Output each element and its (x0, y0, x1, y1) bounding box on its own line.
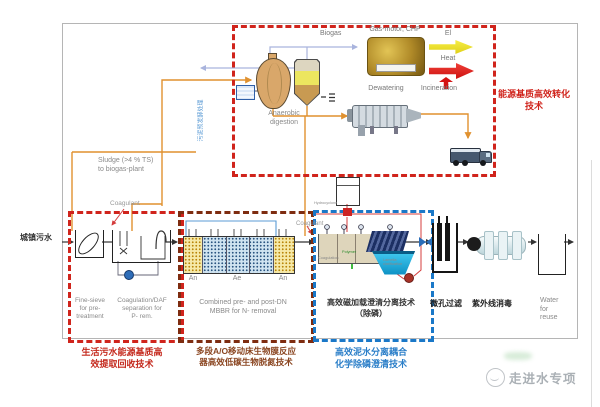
coagulant-label-clarifier: Coagulant (296, 221, 330, 228)
fine-sieve-label: Fine-sieve for pre- treatment (68, 297, 112, 321)
mbbr-zone-label-ae: Ae (229, 275, 245, 284)
mbbr-tank-icon (183, 236, 295, 274)
incineration-label: Incineration (414, 85, 464, 94)
clarifier-caption: 高效磁加载澄清分离技术 （除磷） (315, 298, 427, 320)
clarifier-tech-label: 高效泥水分离耦合 化学除磷澄清技术 (315, 346, 427, 370)
daf-tank-icon (112, 230, 171, 263)
mbbr-zone-divider (249, 237, 250, 273)
reuse-water-label: Water for reuse (540, 297, 574, 323)
mbbr-zone-ae (202, 237, 274, 273)
digestate-storage-tank-icon (294, 59, 320, 106)
sludge-pretreat-note: 污泥预发酵处理 (199, 91, 208, 151)
truck-wheel (462, 160, 468, 166)
microfilter-stub (438, 216, 440, 223)
coagulant-label-daf: Coagulant (110, 200, 150, 208)
hydrocyclone-icon (343, 208, 352, 216)
heat-exchanger-icon (236, 85, 255, 100)
lamella-plates-icon (366, 231, 409, 252)
microfilter-icon (432, 223, 458, 273)
pretreat-tech-label: 生活污水能源基质高 效提取回收技术 (62, 346, 182, 370)
watermark-logo-icon (486, 368, 505, 387)
hydrocyclone-label: Hydrocyclone (314, 201, 337, 205)
microfilter-plate (437, 223, 442, 261)
process-flow-diagram: 能源基质高效转化 技术 Biogas Anaerobic digestion G… (0, 0, 600, 407)
influent-label: 城镇污水 (20, 233, 62, 243)
energy-tech-label: 能源基质高效转化 技术 (492, 88, 576, 112)
chemical-feed-tank-icon (336, 177, 360, 206)
uv-flange (512, 231, 522, 260)
uv-flange (498, 231, 508, 260)
decanter-leg (370, 126, 374, 134)
decanter-leg (394, 126, 398, 134)
decanter-cone (406, 108, 421, 123)
truck-wheel (453, 160, 459, 166)
truck-icon (449, 141, 493, 169)
mbbr-caption: Combined pre- and post-DN MBBR for N- re… (180, 299, 306, 316)
decanter-spout (358, 125, 365, 136)
uv-disinfection-icon (467, 227, 529, 263)
sludge-to-biogas-label: Sludge (>4 % TS) to biogas-plant (98, 157, 168, 174)
clarifier-baffle (355, 234, 356, 263)
sieve-drum-icon (75, 229, 103, 258)
clarifier-section-box (313, 210, 434, 342)
coagulation-label: Coagulation (318, 256, 339, 260)
mbbr-zone-label-an1: An (185, 275, 201, 284)
decanter-centrifuge-icon (350, 96, 424, 140)
dewatering-label: Dewatering (360, 85, 412, 94)
digester-seam (267, 63, 282, 104)
gas-motor-icon (367, 37, 425, 76)
lamella-label: Lamella clarification (383, 258, 402, 266)
watermark: 走进水专项 (486, 368, 577, 387)
watermark-text: 走进水专项 (509, 368, 577, 387)
anaerobic-digestion-label: Anaerobic digestion (250, 110, 318, 127)
mbbr-zone-label-an2: An (275, 275, 291, 284)
mbbr-zone-divider (226, 237, 227, 273)
microfilter-label: 微孔过滤 (427, 299, 465, 309)
storage-tank-fill (295, 60, 319, 105)
watermark-wave (490, 374, 499, 381)
gas-motor-label: Gas-motor, CHP (360, 26, 430, 35)
microfilter-stub (446, 216, 448, 223)
truck-wheel (480, 160, 486, 166)
uv-end-cap (467, 237, 481, 251)
electricity-label: El (438, 30, 458, 39)
uv-label: 紫外线消毒 (466, 299, 518, 309)
heat-label: Heat (436, 55, 460, 64)
mbbr-zone-an2 (274, 237, 294, 273)
feed-tank-level-line (337, 185, 359, 186)
truck-windshield (486, 153, 490, 157)
hopper-edge (371, 251, 416, 254)
stamp-smudge (504, 352, 532, 360)
daf-label: Coagulation/DAF separation for P- rem. (114, 297, 170, 321)
biogas-label: Biogas (320, 30, 341, 39)
mbbr-zone-an1 (184, 237, 202, 273)
reuse-water-tank-icon (538, 234, 566, 275)
gas-motor-nameplate (376, 64, 416, 72)
scan-edge-line (591, 160, 592, 407)
polymer-label: Polymer (342, 250, 356, 254)
uv-flange (484, 231, 494, 260)
fine-sieve-tank-icon (75, 230, 104, 258)
microfilter-plate (445, 223, 450, 261)
mbbr-tech-label: 多段A/O移动床生物膜反应 器高效低碳生物脱氮技术 (181, 346, 311, 369)
